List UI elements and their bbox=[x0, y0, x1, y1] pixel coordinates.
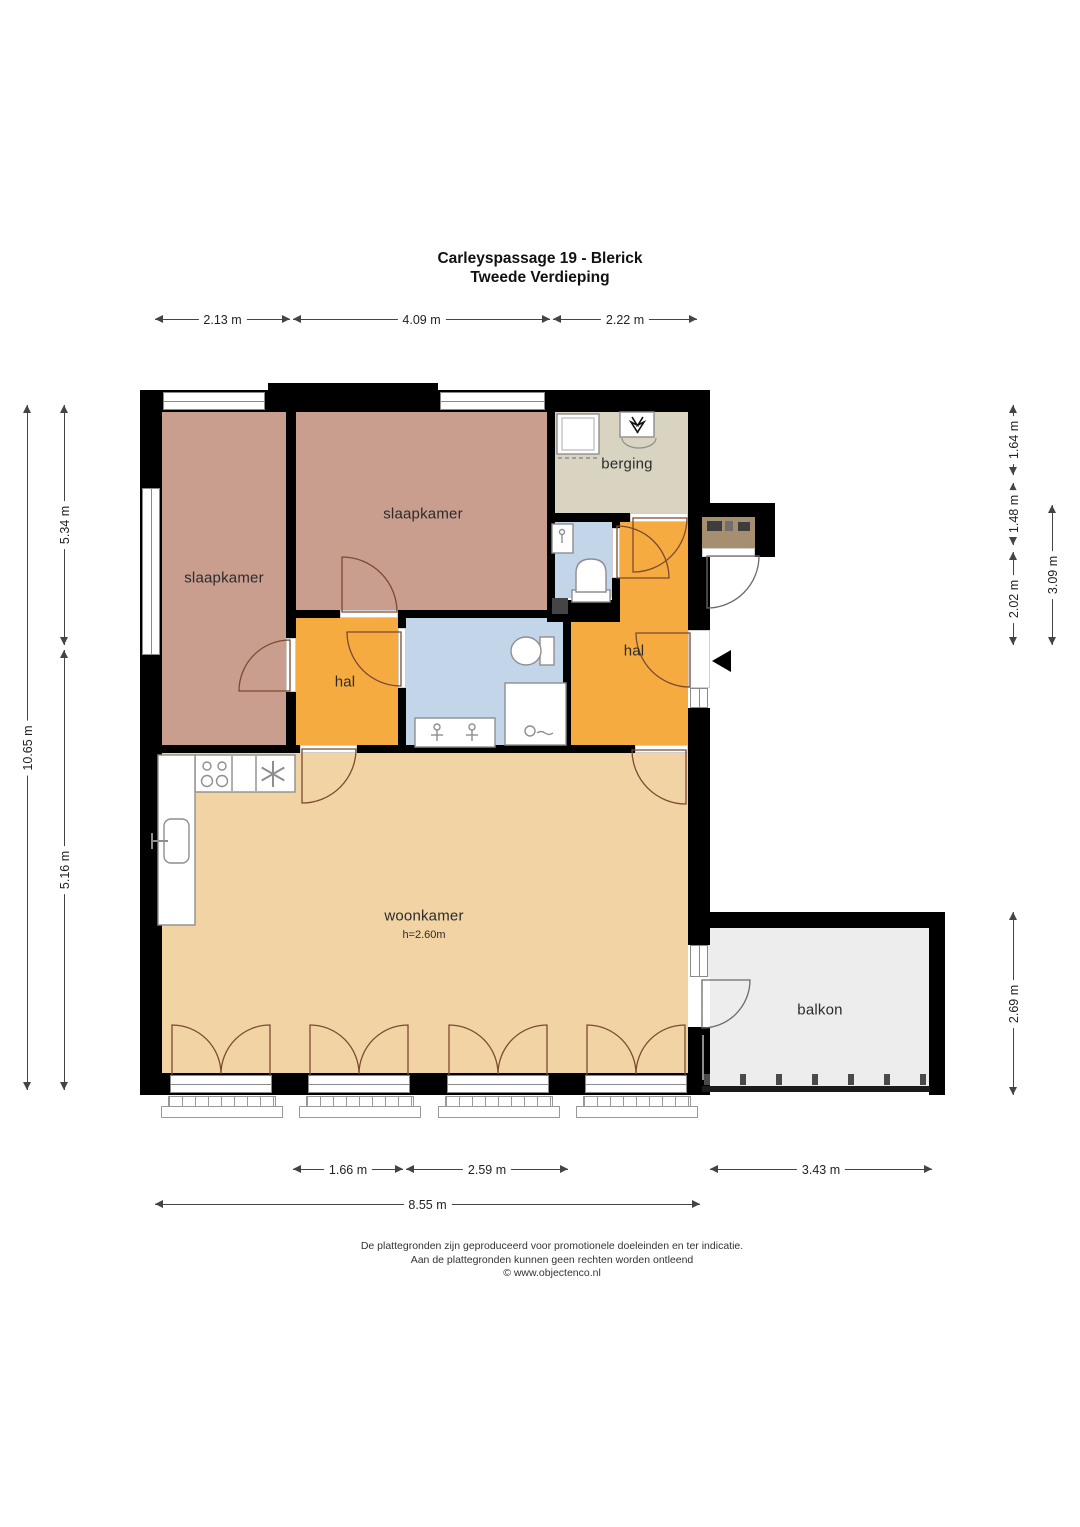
toilet-icon bbox=[511, 637, 554, 665]
dimension-bottom-3: 3.43 m bbox=[710, 1161, 932, 1179]
door-swing-arc bbox=[172, 518, 690, 1076]
dimension-left-2: 5.16 m bbox=[56, 650, 74, 1090]
ventilation-icon bbox=[620, 412, 656, 448]
dimension-right-4: 3.09 m bbox=[1044, 505, 1062, 645]
sink-icon bbox=[552, 524, 573, 553]
dimension-bottom-1: 1.66 m bbox=[293, 1161, 403, 1179]
door-swing-arc bbox=[702, 556, 759, 1028]
room-label-balcony: balkon bbox=[797, 1002, 842, 1019]
room-label-bedroom-middle: slaapkamer bbox=[383, 506, 463, 523]
dimension-right-2: 1.48 m bbox=[1005, 483, 1023, 545]
dimension-bottom-2: 2.59 m bbox=[406, 1161, 568, 1179]
room-label-living-height: h=2.60m bbox=[402, 929, 445, 941]
shower-icon bbox=[505, 683, 566, 745]
dimension-right-3: 2.02 m bbox=[1005, 552, 1023, 645]
dimension-top-3: 2.22 m bbox=[553, 311, 697, 329]
copyright-line: © www.objectenco.nl bbox=[0, 1267, 1080, 1281]
room-label-living: woonkamer bbox=[384, 908, 463, 925]
washing-machine-icon bbox=[557, 414, 599, 458]
dimension-left-total: 10.65 m bbox=[19, 405, 37, 1090]
toilet-icon bbox=[572, 559, 610, 602]
room-label-bedroom-left: slaapkamer bbox=[184, 570, 264, 587]
dimension-top-1: 2.13 m bbox=[155, 311, 290, 329]
dimension-top-2: 4.09 m bbox=[293, 311, 550, 329]
dimension-right-1: 1.64 m bbox=[1005, 405, 1023, 475]
dimension-bottom-total: 8.55 m bbox=[155, 1196, 700, 1214]
fixtures-overlay bbox=[0, 0, 1080, 1527]
disclaimer-line-2: Aan de plattegronden kunnen geen rechten… bbox=[0, 1254, 1080, 1268]
vanity-sink-icon bbox=[415, 718, 495, 747]
room-label-hall-right: hal bbox=[624, 643, 645, 660]
dimension-right-5: 2.69 m bbox=[1005, 912, 1023, 1095]
room-label-storage: berging bbox=[601, 456, 652, 473]
floorplan-page: Carleyspassage 19 - Blerick Tweede Verdi… bbox=[0, 0, 1080, 1527]
dimension-left-1: 5.34 m bbox=[56, 405, 74, 645]
room-label-hall-left: hal bbox=[335, 674, 356, 691]
disclaimer-line-1: De plattegronden zijn geproduceerd voor … bbox=[0, 1240, 1080, 1254]
